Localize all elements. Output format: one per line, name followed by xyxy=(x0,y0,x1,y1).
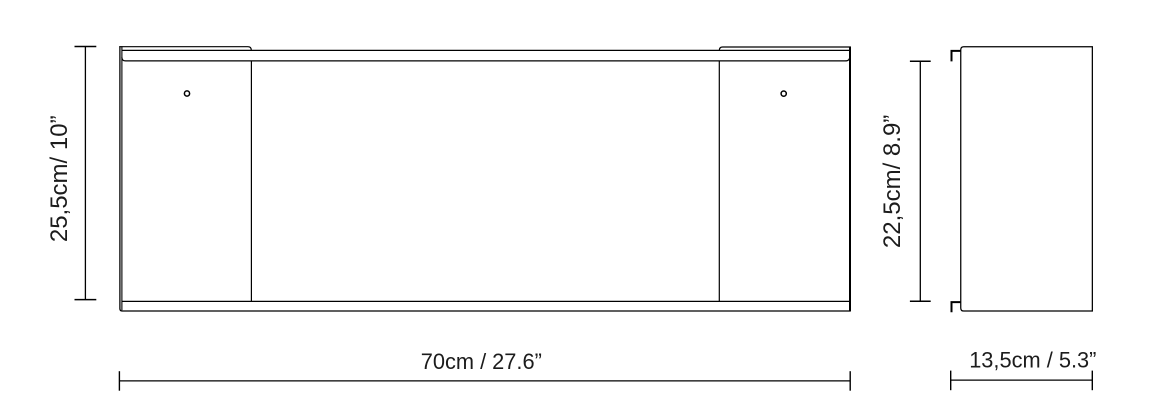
svg-text:25,5cm/ 10”: 25,5cm/ 10” xyxy=(46,115,73,242)
svg-text:13,5cm / 5.3”: 13,5cm / 5.3” xyxy=(969,347,1096,372)
svg-text:22,5cm/ 8.9”: 22,5cm/ 8.9” xyxy=(879,115,906,248)
svg-text:70cm / 27.6”: 70cm / 27.6” xyxy=(421,349,542,374)
